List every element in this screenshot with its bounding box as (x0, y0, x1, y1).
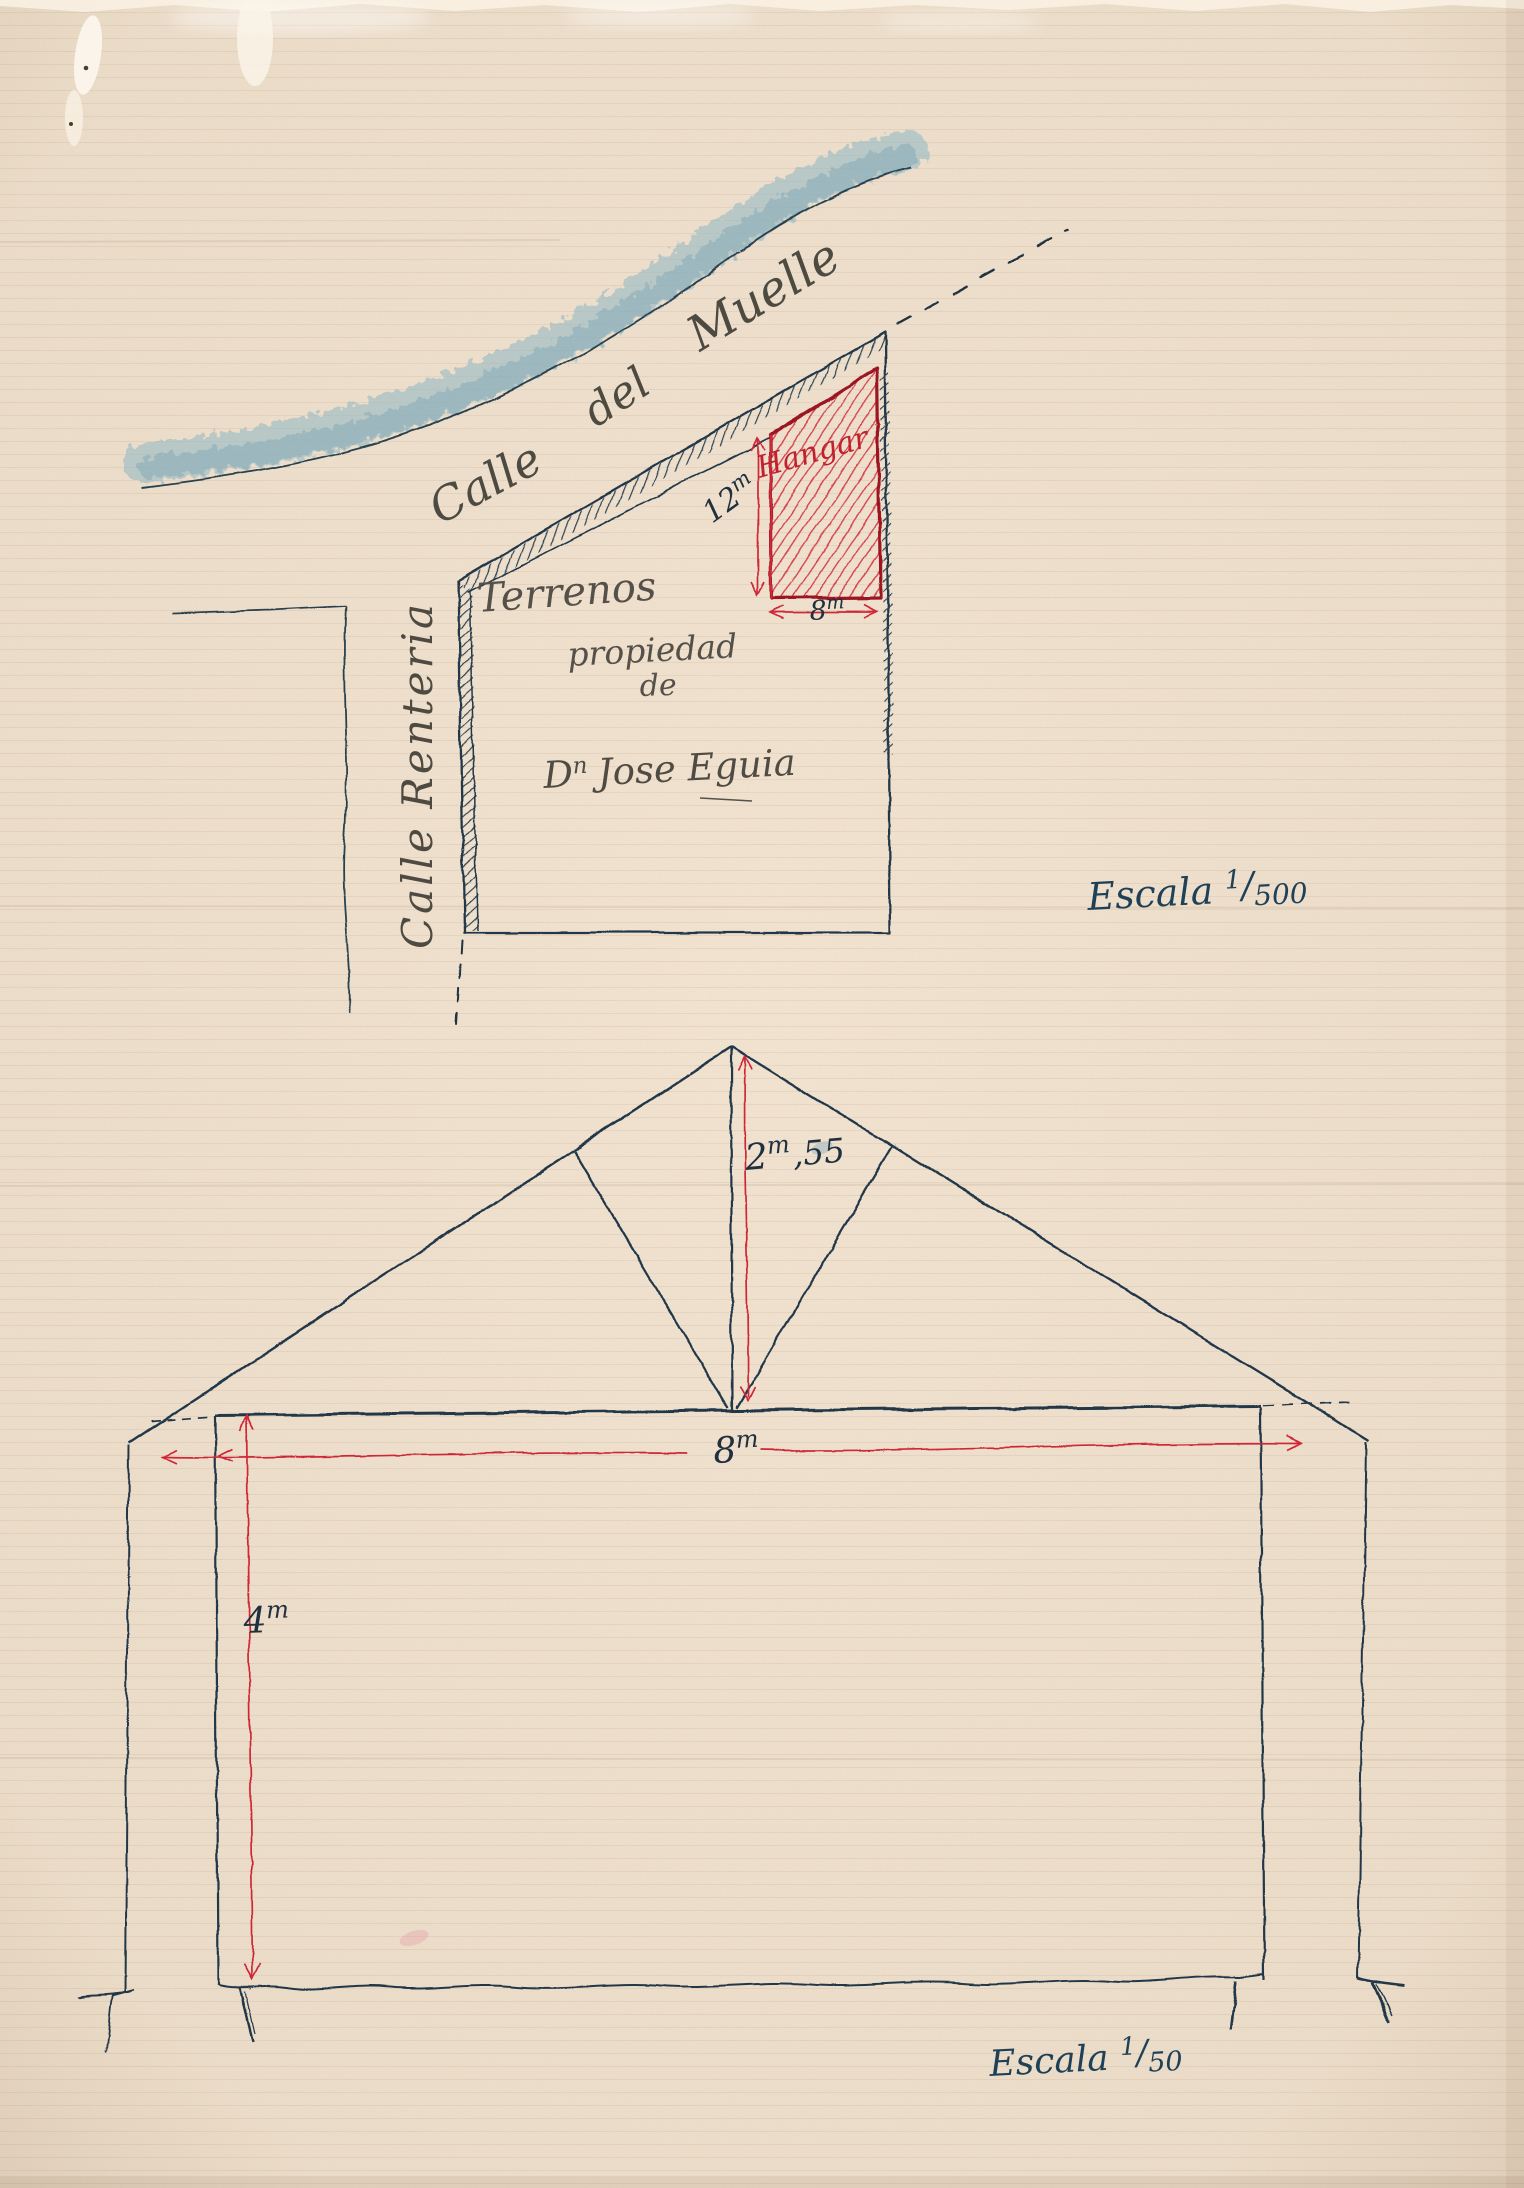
edge-shade-right (1506, 0, 1524, 2188)
terrain-label-line3: de (639, 668, 677, 704)
scanned-plan-page: Calle del Muelle Calle Renteria Terrenos… (0, 0, 1524, 2188)
owner-initial: D (541, 752, 574, 797)
owner-superscript: n (572, 753, 588, 780)
edge-highlight (880, 11, 1040, 33)
edge-highlight (565, 3, 755, 29)
street-label-renteria: Calle Renteria (393, 601, 442, 949)
king-post (730, 1046, 731, 1409)
document-scan: Calle del Muelle Calle Renteria Terrenos… (0, 0, 1524, 2188)
edge-shade-bottom (0, 2176, 1524, 2188)
edge-highlight (170, 2, 430, 34)
